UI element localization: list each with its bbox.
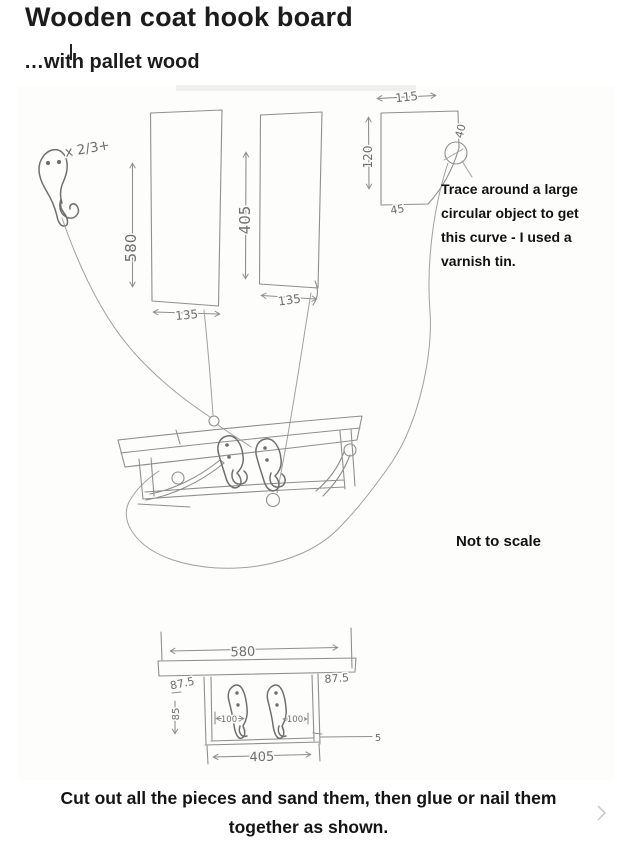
pencil-sketch-scan: x 2/3+ 580 135 405 135 115 120 40 45 [0, 0, 617, 842]
dim-plank2-length: 405 [236, 206, 254, 235]
dim-side-height: 85 [171, 708, 182, 721]
dim-overhang-right: 87.5 [324, 671, 349, 686]
trace-note-line: Trace around a large [441, 177, 617, 201]
caption-line-2: together as shown. [0, 813, 617, 842]
dim-bracket-height: 120 [361, 146, 375, 169]
trace-note: Trace around a large circular object to … [441, 177, 617, 273]
dim-step: 5 [375, 733, 381, 744]
dim-plank1-length: 580 [122, 234, 140, 263]
dim-hook-offset-left: 100 [221, 715, 237, 725]
caption-line-1: Cut out all the pieces and sand them, th… [0, 784, 617, 813]
dim-plank1-width: 135 [175, 307, 199, 323]
scan-edge-artifact [176, 85, 416, 91]
dim-bracket-width: 115 [394, 89, 418, 105]
trace-note-line: circular object to get [441, 201, 617, 225]
document-page: Wooden coat hook board …with pallet wood [0, 0, 617, 842]
hook-screw-hole [57, 160, 61, 164]
trace-note-line: this curve - I used a [441, 225, 617, 249]
not-to-scale-note: Not to scale [456, 533, 541, 550]
trace-note-line: varnish tin. [441, 249, 617, 273]
hook-screw-hole [46, 161, 50, 165]
dim-bracket-notch: 45 [389, 202, 405, 217]
dim-back-width: 405 [249, 750, 274, 766]
instructions-caption: Cut out all the pieces and sand them, th… [0, 784, 617, 842]
dim-front-width: 580 [230, 645, 255, 661]
dim-hook-offset-right: 100 [287, 715, 303, 725]
